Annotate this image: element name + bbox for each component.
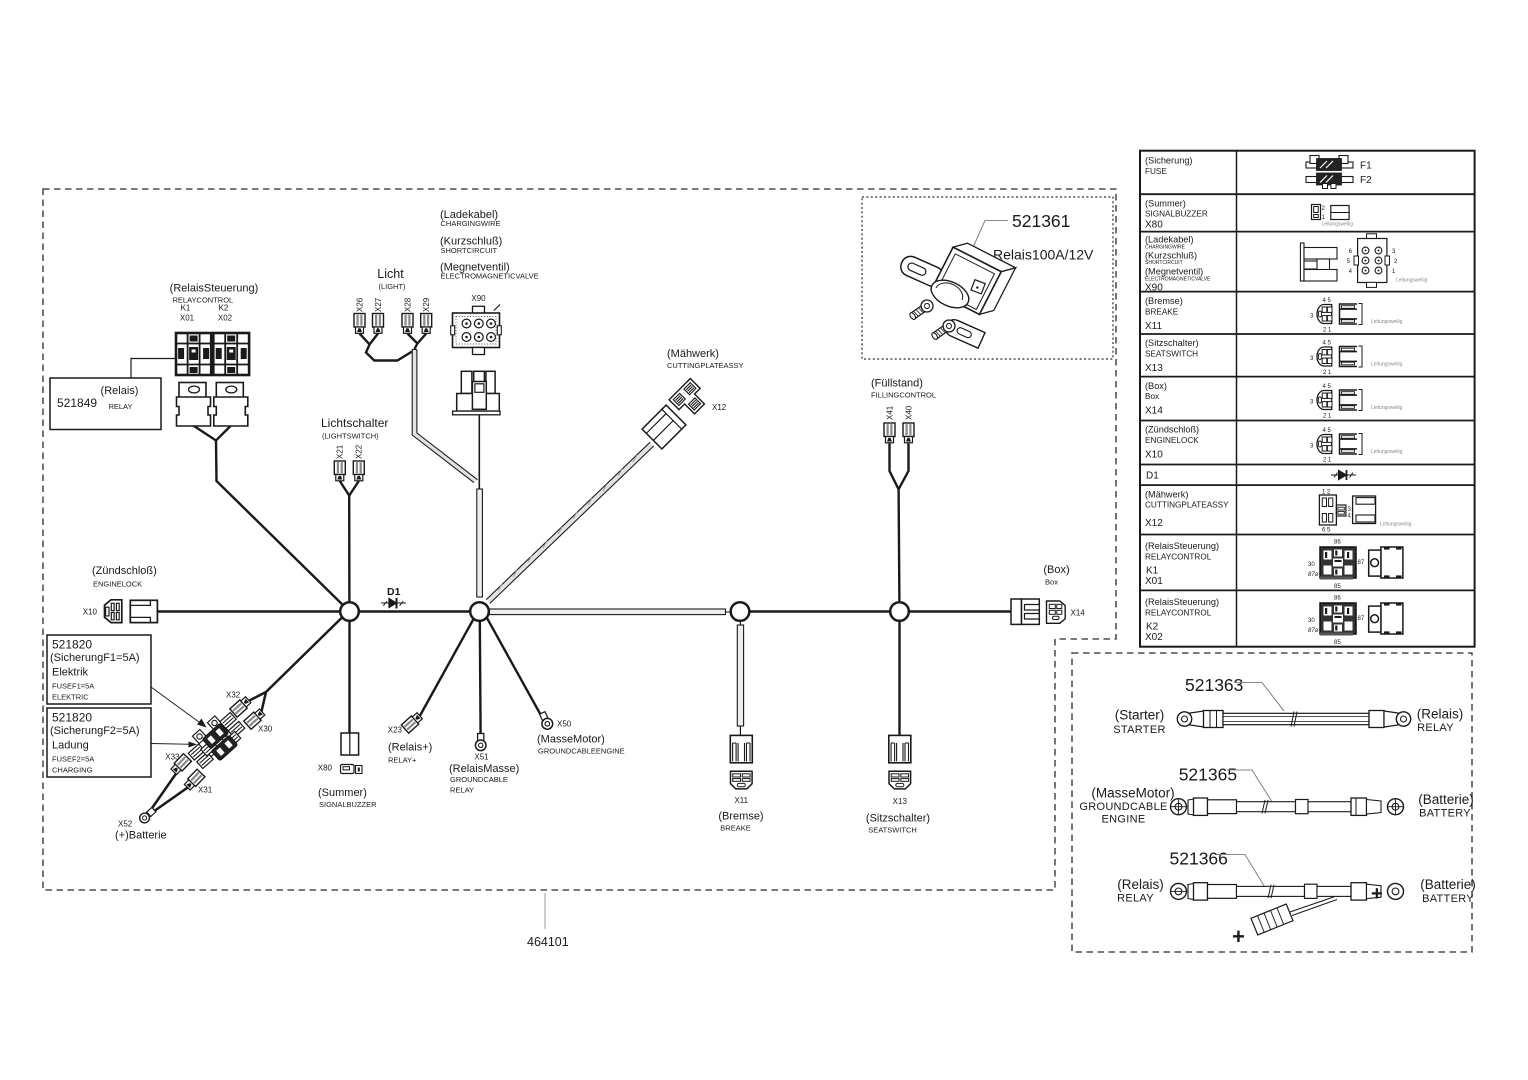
svg-text:(Summer): (Summer) — [318, 787, 367, 799]
svg-text:X32: X32 — [226, 691, 241, 700]
svg-text:BREAKE: BREAKE — [720, 824, 750, 833]
svg-text:(Bremse): (Bremse) — [1145, 296, 1183, 306]
svg-text:X12: X12 — [1145, 518, 1163, 529]
svg-text:ELEKTRIC: ELEKTRIC — [52, 693, 89, 702]
svg-text:(Mähwerk): (Mähwerk) — [1145, 489, 1188, 499]
svg-text:Lichtschalter: Lichtschalter — [321, 416, 388, 430]
svg-text:FUSE: FUSE — [1145, 167, 1167, 176]
svg-text:(RelaisSteuerung): (RelaisSteuerung) — [1145, 541, 1219, 551]
svg-text:Box: Box — [1145, 392, 1159, 401]
svg-text:SHORTCIRCUIT: SHORTCIRCUIT — [1145, 260, 1183, 266]
svg-text:521365: 521365 — [1179, 765, 1237, 785]
svg-text:D1: D1 — [1146, 470, 1159, 481]
svg-text:(Summer): (Summer) — [1145, 198, 1186, 208]
svg-text:RELAYCONTROL: RELAYCONTROL — [1145, 553, 1212, 562]
svg-text:X33: X33 — [165, 753, 180, 762]
svg-text:SIGNALBUZZER: SIGNALBUZZER — [319, 800, 377, 809]
svg-text:(Bremse): (Bremse) — [718, 811, 763, 823]
svg-text:ENGINELOCK: ENGINELOCK — [1145, 436, 1199, 445]
svg-text:(Kurzschluß): (Kurzschluß) — [1145, 250, 1197, 260]
svg-text:X13: X13 — [1145, 363, 1163, 374]
svg-text:RELAYCONTROL: RELAYCONTROL — [1145, 608, 1212, 617]
svg-text:D1: D1 — [387, 586, 401, 598]
svg-text:(SicherungF2=5A): (SicherungF2=5A) — [50, 725, 140, 737]
svg-text:BATTERY: BATTERY — [1419, 808, 1471, 820]
svg-text:X14: X14 — [1145, 406, 1163, 417]
svg-text:464101: 464101 — [527, 935, 569, 949]
svg-text:GROUNDCABLEENGINE: GROUNDCABLEENGINE — [538, 747, 625, 756]
svg-text:(Zündschloß): (Zündschloß) — [1145, 425, 1199, 435]
svg-text:RELAY: RELAY — [1117, 893, 1154, 905]
svg-text:X52: X52 — [118, 820, 133, 829]
svg-text:(Sitzschalter): (Sitzschalter) — [1145, 338, 1199, 348]
svg-text:(Sicherung): (Sicherung) — [1145, 155, 1193, 165]
svg-text:CHARGINGWIRE: CHARGINGWIRE — [441, 219, 501, 228]
svg-text:(Box): (Box) — [1043, 564, 1069, 576]
svg-text:Box: Box — [1045, 578, 1058, 587]
svg-text:(LIGHTSWITCH): (LIGHTSWITCH) — [322, 432, 379, 441]
svg-text:K2: K2 — [219, 304, 229, 313]
svg-text:X80: X80 — [318, 764, 333, 773]
svg-text:X01: X01 — [180, 314, 195, 323]
svg-text:K1: K1 — [181, 304, 191, 313]
svg-text:X11: X11 — [734, 796, 748, 805]
svg-text:+: + — [1232, 924, 1245, 949]
svg-text:(Starter): (Starter) — [1115, 708, 1165, 723]
svg-text:X13: X13 — [893, 797, 908, 806]
svg-text:(Zündschloß): (Zündschloß) — [92, 565, 157, 577]
svg-text:SHORTCIRCUIT: SHORTCIRCUIT — [441, 246, 498, 255]
svg-text:(MasseMotor): (MasseMotor) — [537, 734, 605, 746]
svg-text:X10: X10 — [1145, 450, 1163, 461]
svg-text:(Box): (Box) — [1145, 381, 1167, 391]
svg-text:(Relais): (Relais) — [101, 385, 139, 397]
svg-text:SEATSWITCH: SEATSWITCH — [1145, 349, 1198, 358]
svg-text:K1: K1 — [1146, 566, 1159, 577]
svg-text:X31: X31 — [198, 786, 213, 795]
svg-text:(SicherungF1=5A): (SicherungF1=5A) — [50, 652, 140, 664]
svg-text:RELAY: RELAY — [108, 402, 132, 411]
svg-text:FUSEF2=5A: FUSEF2=5A — [52, 755, 94, 764]
svg-text:521363: 521363 — [1185, 675, 1243, 695]
svg-text:CUTTINGPLATEASSY: CUTTINGPLATEASSY — [1145, 501, 1229, 510]
svg-text:(RelaisSteuerung): (RelaisSteuerung) — [170, 283, 259, 295]
svg-text:Leitungsweilig: Leitungsweilig — [1396, 278, 1428, 284]
svg-text:(Relais): (Relais) — [1417, 707, 1464, 722]
svg-text:CUTTINGPLATEASSY: CUTTINGPLATEASSY — [667, 361, 744, 370]
svg-text:(RelaisMasse): (RelaisMasse) — [449, 763, 519, 775]
svg-text:RELAY+: RELAY+ — [388, 756, 417, 765]
svg-text:GROUNDCABLE: GROUNDCABLE — [1079, 801, 1167, 813]
svg-text:(Relais): (Relais) — [1117, 877, 1164, 892]
svg-text:X23: X23 — [388, 726, 403, 735]
svg-text:(Megnetventil): (Megnetventil) — [1145, 266, 1203, 276]
svg-text:X10: X10 — [83, 608, 98, 617]
svg-text:(Mähwerk): (Mähwerk) — [667, 348, 719, 360]
svg-text:X14: X14 — [1071, 609, 1086, 618]
svg-text:X90: X90 — [471, 294, 486, 303]
svg-text:521820: 521820 — [52, 711, 92, 725]
svg-text:X02: X02 — [1145, 632, 1163, 643]
svg-text:(Batterie): (Batterie) — [1420, 877, 1476, 892]
svg-text:Licht: Licht — [377, 267, 404, 281]
svg-text:RELAY: RELAY — [450, 786, 474, 795]
svg-text:+: + — [1371, 883, 1383, 905]
svg-text:(LIGHT): (LIGHT) — [378, 282, 406, 291]
svg-text:CHARGING: CHARGING — [52, 766, 93, 775]
svg-text:ENGINE: ENGINE — [1102, 814, 1146, 826]
svg-text:Elektrik: Elektrik — [52, 667, 89, 679]
svg-text:BREAKE: BREAKE — [1145, 307, 1179, 316]
svg-text:BATTERY: BATTERY — [1422, 893, 1474, 905]
svg-text:F2: F2 — [1360, 175, 1372, 186]
svg-text:X29: X29 — [422, 297, 431, 312]
svg-text:Ladung: Ladung — [52, 740, 89, 752]
svg-text:X12: X12 — [712, 403, 727, 412]
svg-text:(Relais+): (Relais+) — [388, 742, 432, 754]
svg-text:521849: 521849 — [57, 396, 97, 410]
svg-text:X26: X26 — [356, 297, 365, 312]
svg-text:SIGNALBUZZER: SIGNALBUZZER — [1145, 210, 1208, 219]
svg-text:521361: 521361 — [1012, 211, 1070, 231]
svg-text:521820: 521820 — [52, 638, 92, 652]
svg-text:RELAY: RELAY — [1417, 722, 1454, 734]
svg-text:X90: X90 — [1145, 282, 1163, 293]
svg-text:X21: X21 — [336, 444, 345, 459]
svg-text:X11: X11 — [1145, 321, 1162, 332]
svg-text:ELECTROMAGNETICVALVE: ELECTROMAGNETICVALVE — [441, 272, 539, 281]
svg-text:X41: X41 — [886, 405, 895, 420]
svg-text:(Ladekabel): (Ladekabel) — [1145, 234, 1194, 244]
svg-text:FUSEF1=5A: FUSEF1=5A — [52, 682, 94, 691]
svg-text:Relais100A/12V: Relais100A/12V — [993, 247, 1094, 263]
svg-text:X40: X40 — [905, 405, 914, 420]
svg-text:X01: X01 — [1145, 576, 1163, 587]
svg-text:X30: X30 — [258, 725, 273, 734]
svg-text:FILLINGCONTROL: FILLINGCONTROL — [871, 391, 936, 400]
svg-text:6 5: 6 5 — [1322, 528, 1331, 534]
svg-text:X80: X80 — [1145, 219, 1163, 230]
svg-text:(Füllstand): (Füllstand) — [871, 378, 923, 390]
svg-text:X51: X51 — [474, 753, 489, 762]
svg-text:X28: X28 — [404, 297, 413, 312]
svg-text:ENGINELOCK: ENGINELOCK — [93, 580, 142, 589]
svg-text:ELECTROMAGNETICVALVE: ELECTROMAGNETICVALVE — [1145, 276, 1211, 282]
svg-text:(Batterie): (Batterie) — [1418, 792, 1474, 807]
svg-text:Leitungsweilig: Leitungsweilig — [1380, 522, 1412, 528]
svg-text:(MasseMotor): (MasseMotor) — [1091, 786, 1174, 801]
svg-text:(+)Batterie: (+)Batterie — [115, 830, 167, 842]
svg-text:K2: K2 — [1146, 621, 1159, 632]
svg-text:Leitungsweilig: Leitungsweilig — [1322, 222, 1354, 228]
svg-text:(RelaisSteuerung): (RelaisSteuerung) — [1145, 597, 1219, 607]
svg-text:F1: F1 — [1360, 161, 1372, 172]
svg-text:521366: 521366 — [1170, 849, 1228, 869]
svg-text:GROUNDCABLE: GROUNDCABLE — [450, 775, 508, 784]
svg-text:STARTER: STARTER — [1113, 724, 1165, 736]
svg-text:SEATSWITCH: SEATSWITCH — [868, 826, 917, 835]
svg-text:(Sitzschalter): (Sitzschalter) — [866, 813, 930, 825]
svg-text:X50: X50 — [557, 720, 572, 729]
svg-text:1 2: 1 2 — [1322, 490, 1331, 496]
svg-text:X27: X27 — [374, 297, 383, 312]
svg-text:X02: X02 — [218, 314, 233, 323]
svg-text:X22: X22 — [355, 444, 364, 459]
